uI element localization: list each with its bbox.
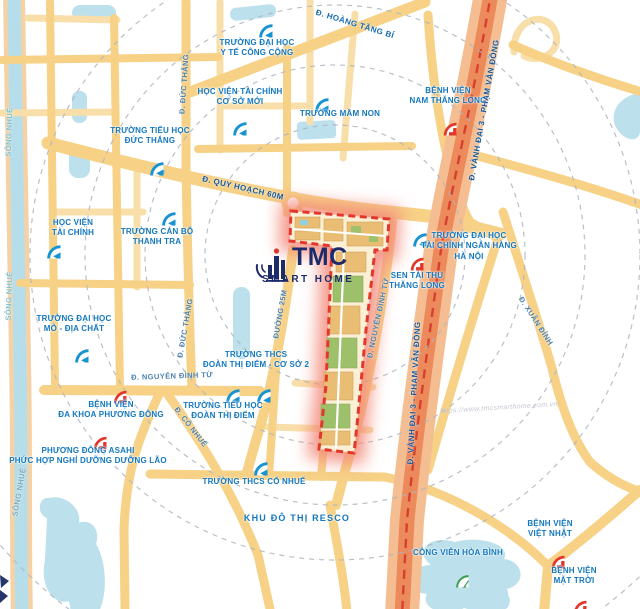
hospital-icon [538, 542, 565, 569]
graduation-icon [62, 336, 89, 363]
poi-label-line: PHƯƠNG ĐÔNG ASAHI [9, 446, 167, 456]
graduation-icon [241, 449, 268, 476]
poi-label-line: ĐỨC THẮNG [110, 136, 190, 146]
poi-label-line: SEN TÀI THU [389, 271, 445, 281]
poi-label-line: ĐA KHOA PHƯƠNG ĐÔNG [58, 410, 164, 420]
poi-label-dh-tai-chinh-ngan-hang: TRƯỜNG ĐẠI HỌCTÀI CHÍNH NGÂN HÀNGHÀ NỘI [421, 231, 517, 262]
poi-label-line: TÀI CHÍNH [52, 228, 94, 238]
poi-label-khu-do-thi-resco: KHU ĐÔ THỊ RESCO [244, 513, 350, 525]
poi-label-line: THĂNG LONG [389, 281, 445, 291]
poi-label-line: TRƯỜNG THCS [203, 350, 309, 360]
poi-label-line: MỎ - ĐỊA CHẤT [37, 324, 112, 334]
poi-label-line: BỆNH VIỆN [551, 566, 596, 576]
poi-label-truong-mam-non: TRƯỜNG MẦM NON [300, 109, 380, 119]
poi-label-line: HÀ NỘI [421, 252, 517, 262]
poi-label-phuong-dong-asahi: PHƯƠNG ĐÔNG ASAHIPHỨC HỢP NGHỈ DƯỠNG DƯỠ… [9, 446, 167, 467]
tree-icon [442, 561, 469, 588]
poi-label-line: TRƯỜNG TIỂU HỌC [110, 126, 190, 136]
graduation-icon [213, 376, 240, 403]
poi-label-benh-vien-mat-troi: BỆNH VIỆNMẶT TRỜI [551, 566, 596, 587]
hospital-icon [430, 109, 457, 136]
poi-label-line: NAM THĂNG LONG [409, 96, 486, 106]
poi-label-line: HỌC VIỆN [52, 218, 94, 228]
graduation-icon [302, 85, 329, 112]
poi-label-line: TRƯỜNG ĐẠI HỌC [37, 314, 112, 324]
poi-label-benh-vien-da-khoa-phuong-dong: BỆNH VIỆNĐA KHOA PHƯƠNG ĐÔNG [58, 400, 164, 421]
poi-label-thcs-doan-thi-diem-cs2: TRƯỜNG THCSĐOÀN THỊ ĐIỂM - CƠ SỞ 2 [203, 350, 309, 371]
poi-label-line: VIỆT NHẬT [527, 529, 572, 539]
poi-label-line: TRƯỜNG CÁN BỘ [121, 227, 194, 237]
poi-label-line: ĐOÀN THỊ ĐIỂM - CƠ SỞ 2 [203, 360, 309, 370]
graduation-icon [244, 376, 271, 403]
poi-label-sen-tai-thu-thang-long: SEN TÀI THUTHĂNG LONG [389, 271, 445, 292]
poi-label-dh-y-te-cong-cong: TRƯỜNG ĐẠI HỌCY TẾ CÔNG CỘNG [220, 38, 295, 59]
logo-name: TMC [292, 245, 348, 270]
poi-label-line: TRƯỜNG MẦM NON [300, 109, 380, 119]
map-edge-artifact [0, 575, 9, 603]
poi-label-line: PHỨC HỢP NGHỈ DƯỠNG DƯỠNG LÃO [9, 456, 167, 466]
poi-label-hoc-vien-tai-chinh: HỌC VIỆNTÀI CHÍNH [52, 218, 94, 239]
poi-label-line: CƠ SỞ MỚI [198, 97, 283, 107]
tmc-smart-home-logo: TMC SMART HOME [254, 243, 334, 293]
poi-label-line: ĐOÀN THỊ ĐIỂM [183, 411, 263, 421]
poi-label-line: BỆNH VIỆN [527, 519, 572, 529]
poi-label-line: THANH TRA [121, 237, 194, 247]
graduation-icon [220, 109, 247, 136]
poi-label-truong-can-bo-thanh-tra: TRƯỜNG CÁN BỘTHANH TRA [121, 227, 194, 248]
poi-label-line: TRƯỜNG TIỂU HỌC [183, 401, 263, 411]
road-label-song-nhue-mid: SÔNG NHUỆ [4, 271, 15, 320]
poi-label-cong-vien-hoa-binh: CÔNG VIÊN HÒA BÌNH [413, 548, 503, 558]
poi-label-benh-vien-nam-thang-long: BỆNH VIỆNNAM THĂNG LONG [409, 86, 486, 107]
poi-label-line: KHU ĐÔ THỊ RESCO [244, 513, 350, 525]
logo-tagline: SMART HOME [262, 274, 354, 285]
poi-label-line: TRƯỜNG ĐẠI HỌC [220, 38, 295, 48]
graduation-icon [149, 199, 176, 226]
poi-label-dh-mo-dia-chat: TRƯỜNG ĐẠI HỌCMỎ - ĐỊA CHẤT [37, 314, 112, 335]
poi-label-line: BỆNH VIỆN [409, 86, 486, 96]
poi-label-benh-vien-viet-nhat: BỆNH VIỆNVIỆT NHẬT [527, 519, 572, 540]
poi-label-line: TÀI CHÍNH NGÂN HÀNG [421, 241, 517, 251]
poi-label-line: BỆNH VIỆN [58, 400, 164, 410]
hospital-icon [560, 587, 587, 609]
graduation-icon [246, 11, 273, 38]
poi-label-thcs-co-nhue: TRƯỜNG THCS CỔ NHUẾ [202, 477, 305, 487]
poi-label-tieu-hoc-duc-thang: TRƯỜNG TIỂU HỌCĐỨC THẮNG [110, 126, 190, 147]
poi-label-line: MẶT TRỜI [551, 576, 596, 586]
poi-label-line: TRƯỜNG THCS CỔ NHUẾ [202, 477, 305, 487]
road-label-song-nhue-top: SÔNG NHUỆ [4, 107, 15, 156]
song-nhue-river [14, 0, 22, 609]
poi-label-line: HỌC VIỆN TÀI CHÍNH [198, 87, 283, 97]
poi-label-line: TRƯỜNG ĐẠI HỌC [421, 231, 517, 241]
hospital-icon [397, 244, 424, 271]
location-map: TMC SMART HOME TRƯỜNG ĐẠI HỌCY TẾ CÔNG C… [0, 0, 640, 609]
graduation-icon [137, 149, 164, 176]
poi-label-tieu-hoc-doan-thi-diem: TRƯỜNG TIỂU HỌCĐOÀN THỊ ĐIỂM [183, 401, 263, 422]
poi-label-line: CÔNG VIÊN HÒA BÌNH [413, 548, 503, 558]
poi-label-line: Y TẾ CÔNG CỘNG [220, 48, 295, 58]
poi-label-hoc-vien-tai-chinh-co-so-moi: HỌC VIỆN TÀI CHÍNHCƠ SỞ MỚI [198, 87, 283, 108]
